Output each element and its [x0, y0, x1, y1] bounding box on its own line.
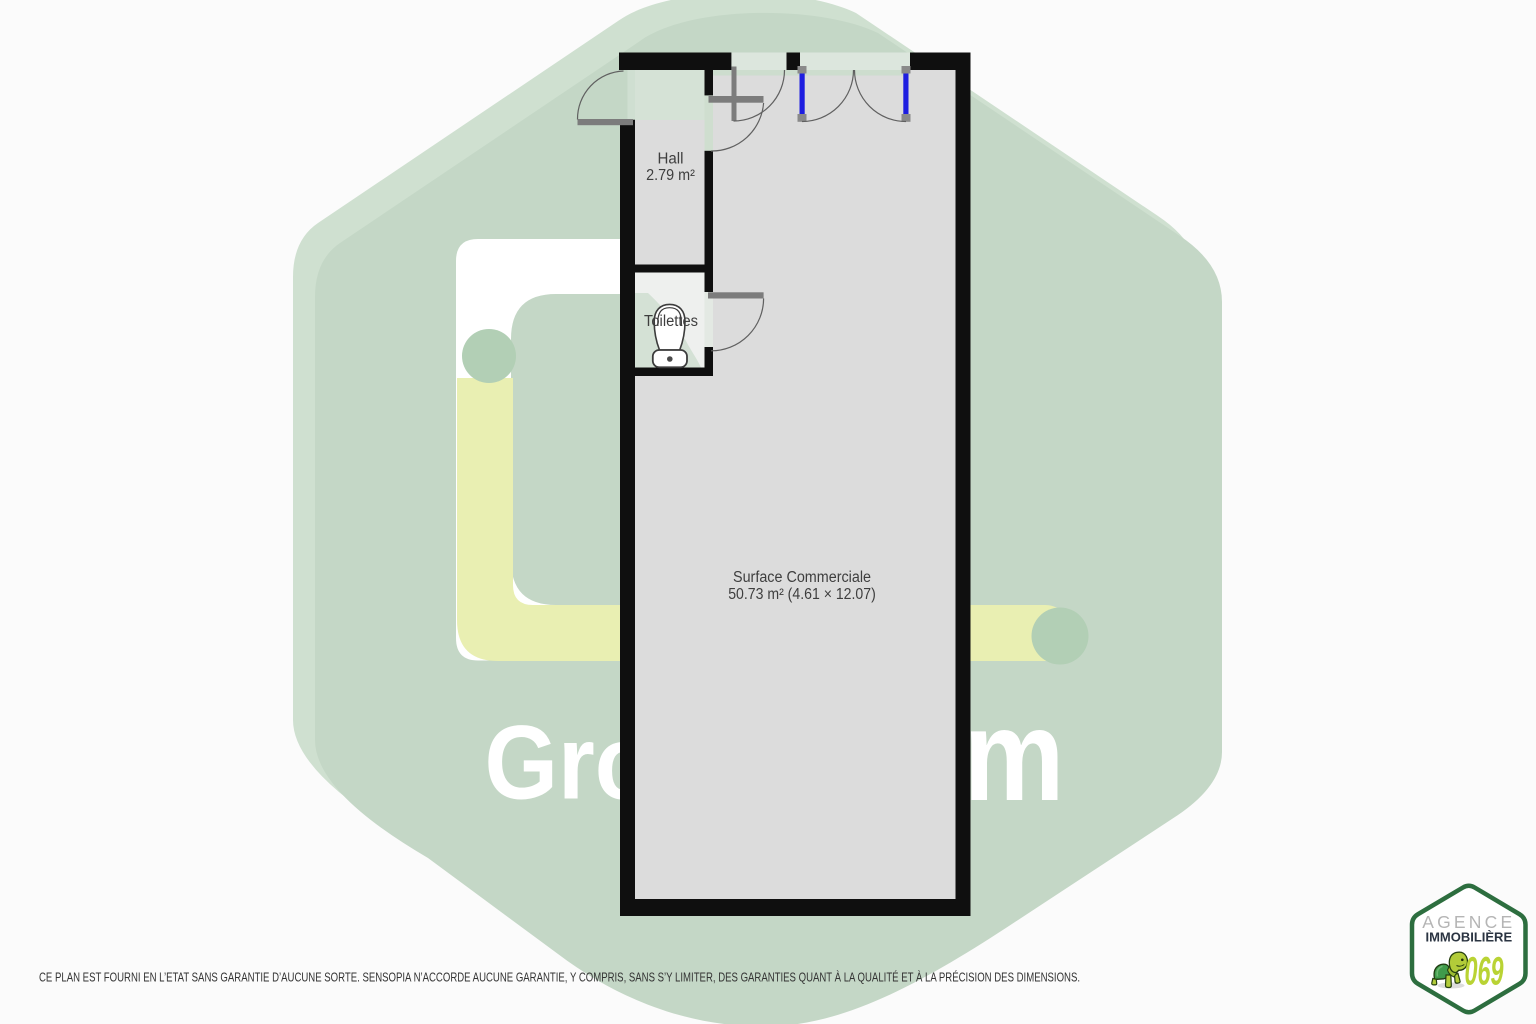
svg-text:50.73 m² (4.61 × 12.07): 50.73 m² (4.61 × 12.07) [728, 586, 876, 603]
svg-text:IMMOBILIÈRE: IMMOBILIÈRE [1425, 930, 1512, 945]
svg-text:Surface Commerciale: Surface Commerciale [733, 569, 871, 586]
svg-text:CE PLAN EST FOURNI EN L’ETAT S: CE PLAN EST FOURNI EN L’ETAT SANS GARANT… [39, 969, 1080, 984]
svg-text:069: 069 [1465, 950, 1504, 994]
svg-text:m: m [964, 682, 1065, 828]
svg-text:2.79 m²: 2.79 m² [646, 167, 695, 184]
svg-text:Hall: Hall [658, 151, 684, 168]
svg-text:Toilettes: Toilettes [644, 313, 698, 330]
